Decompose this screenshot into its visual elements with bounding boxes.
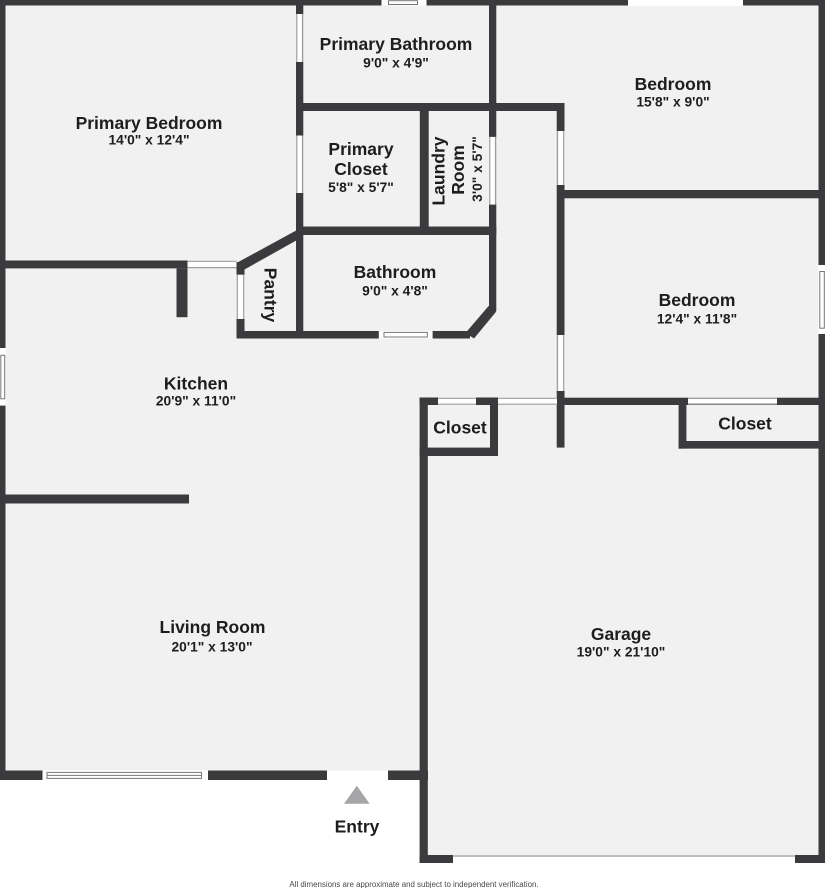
svg-text:20'9" x 11'0": 20'9" x 11'0" — [156, 394, 236, 409]
svg-text:12'4" x 11'8": 12'4" x 11'8" — [657, 312, 737, 327]
svg-text:9'0" x 4'9": 9'0" x 4'9" — [363, 56, 429, 71]
svg-text:Closet: Closet — [433, 418, 487, 438]
svg-text:Bedroom: Bedroom — [635, 74, 712, 94]
svg-text:5'8" x 5'7": 5'8" x 5'7" — [328, 180, 394, 195]
svg-text:Kitchen: Kitchen — [164, 374, 228, 394]
svg-text:Laundry: Laundry — [429, 136, 449, 205]
svg-text:3'0" x 5'7": 3'0" x 5'7" — [470, 136, 485, 202]
svg-text:Primary: Primary — [328, 139, 393, 159]
svg-text:Closet: Closet — [334, 159, 388, 179]
svg-text:Living Room: Living Room — [160, 617, 266, 637]
svg-text:Room: Room — [448, 145, 468, 195]
svg-text:Primary Bathroom: Primary Bathroom — [320, 34, 473, 54]
svg-text:20'1" x 13'0": 20'1" x 13'0" — [171, 640, 252, 655]
svg-text:All dimensions are approximate: All dimensions are approximate and subje… — [289, 880, 538, 888]
svg-text:Entry: Entry — [335, 817, 380, 837]
svg-text:Pantry: Pantry — [261, 268, 281, 323]
svg-text:9'0" x 4'8": 9'0" x 4'8" — [362, 284, 428, 299]
svg-text:Bathroom: Bathroom — [354, 262, 437, 282]
svg-text:15'8" x 9'0": 15'8" x 9'0" — [636, 95, 709, 110]
svg-text:Garage: Garage — [591, 624, 652, 644]
svg-text:Primary Bedroom: Primary Bedroom — [76, 113, 223, 133]
svg-text:Bedroom: Bedroom — [659, 290, 736, 310]
svg-text:14'0" x 12'4": 14'0" x 12'4" — [108, 133, 189, 148]
svg-text:19'0" x 21'10": 19'0" x 21'10" — [577, 645, 666, 660]
svg-text:Closet: Closet — [718, 414, 772, 434]
